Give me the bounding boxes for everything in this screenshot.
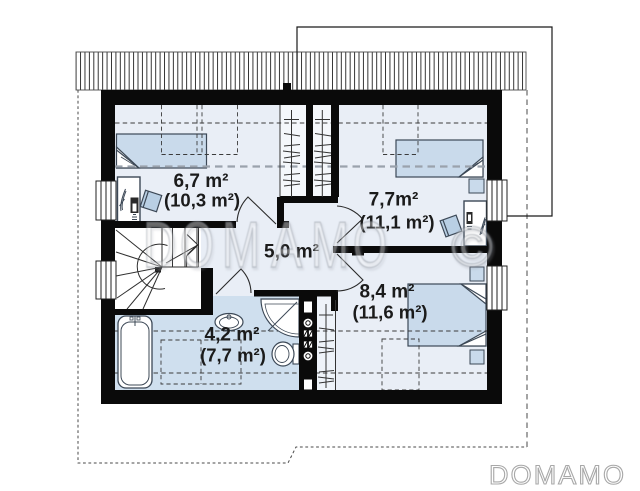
- svg-text:O: O: [353, 208, 387, 281]
- svg-text:4,2 m²: 4,2 m²: [205, 325, 260, 346]
- svg-text:©: ©: [451, 215, 493, 279]
- svg-text:D: D: [143, 208, 176, 281]
- svg-text:(11,6 m²): (11,6 m²): [352, 302, 427, 323]
- svg-text:M: M: [311, 208, 349, 281]
- svg-text:DOMAMO: DOMAMO: [489, 460, 626, 490]
- svg-text:(7,7 m²): (7,7 m²): [200, 345, 266, 366]
- svg-text:O: O: [180, 208, 214, 281]
- svg-text:A: A: [271, 208, 302, 281]
- svg-text:8,4 m²: 8,4 m²: [360, 282, 415, 303]
- svg-text:M: M: [222, 208, 260, 281]
